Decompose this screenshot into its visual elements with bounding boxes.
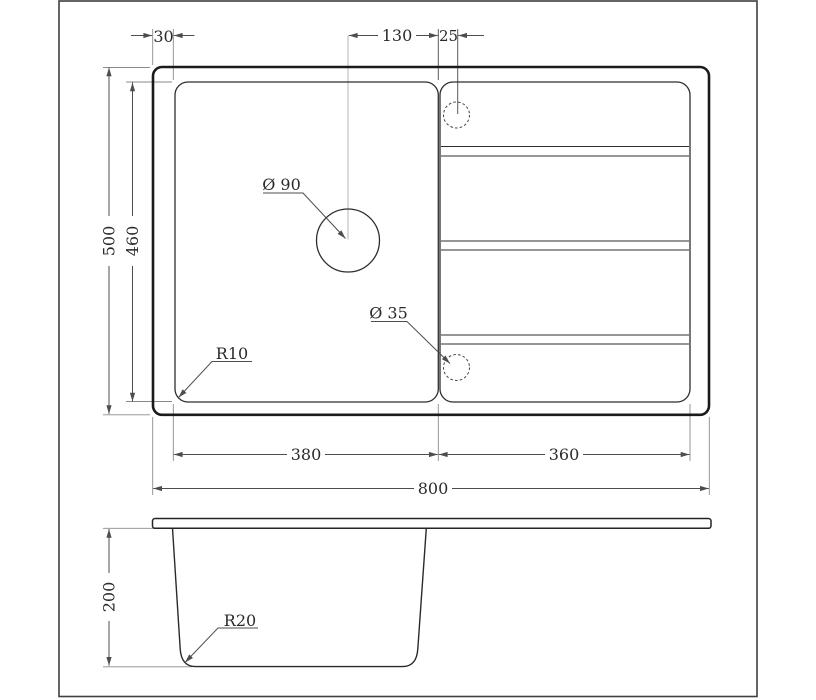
dim-text-500: 500 — [100, 226, 119, 257]
callout-text-corner-radius: R10 — [216, 344, 248, 363]
callout-text-bottom-radius: R20 — [224, 611, 256, 630]
rim-profile — [153, 519, 712, 529]
bowl-outline — [175, 82, 438, 402]
drainboard-outline — [440, 82, 690, 402]
bowl-profile — [173, 528, 427, 666]
dim-text-460: 460 — [123, 226, 142, 257]
leader-corner-radius — [179, 362, 253, 398]
dim-text-30: 30 — [153, 27, 173, 46]
tap-hole-top-circle — [444, 102, 470, 128]
dim-text-130: 130 — [382, 26, 413, 45]
callout-text-tap-hole: Ø 35 — [369, 304, 408, 323]
dim-text-800: 800 — [418, 479, 449, 498]
extension-lines — [103, 29, 709, 495]
dim-text-380: 380 — [291, 445, 322, 464]
sink-technical-drawing-page: 30 130 25 500 460 380 360 800 Ø 90 Ø 35 … — [0, 0, 816, 700]
dim-text-200: 200 — [100, 582, 119, 613]
drainboard-grooves — [441, 147, 689, 345]
side-view: 200 R20 — [100, 519, 712, 667]
leader-drain-hole — [263, 193, 346, 239]
leader-bottom-radius — [185, 628, 258, 663]
callout-text-drain-hole: Ø 90 — [262, 175, 301, 194]
tap-hole-bottom-circle — [444, 355, 470, 381]
drawing-border — [59, 1, 757, 697]
leader-lines — [179, 193, 451, 398]
dim-text-360: 360 — [549, 445, 580, 464]
top-view: 30 130 25 500 460 380 360 800 Ø 90 Ø 35 … — [100, 26, 710, 498]
sink-technical-drawing: 30 130 25 500 460 380 360 800 Ø 90 Ø 35 … — [0, 0, 816, 700]
dim-text-25: 25 — [439, 27, 458, 45]
dimension-lines — [109, 36, 709, 489]
